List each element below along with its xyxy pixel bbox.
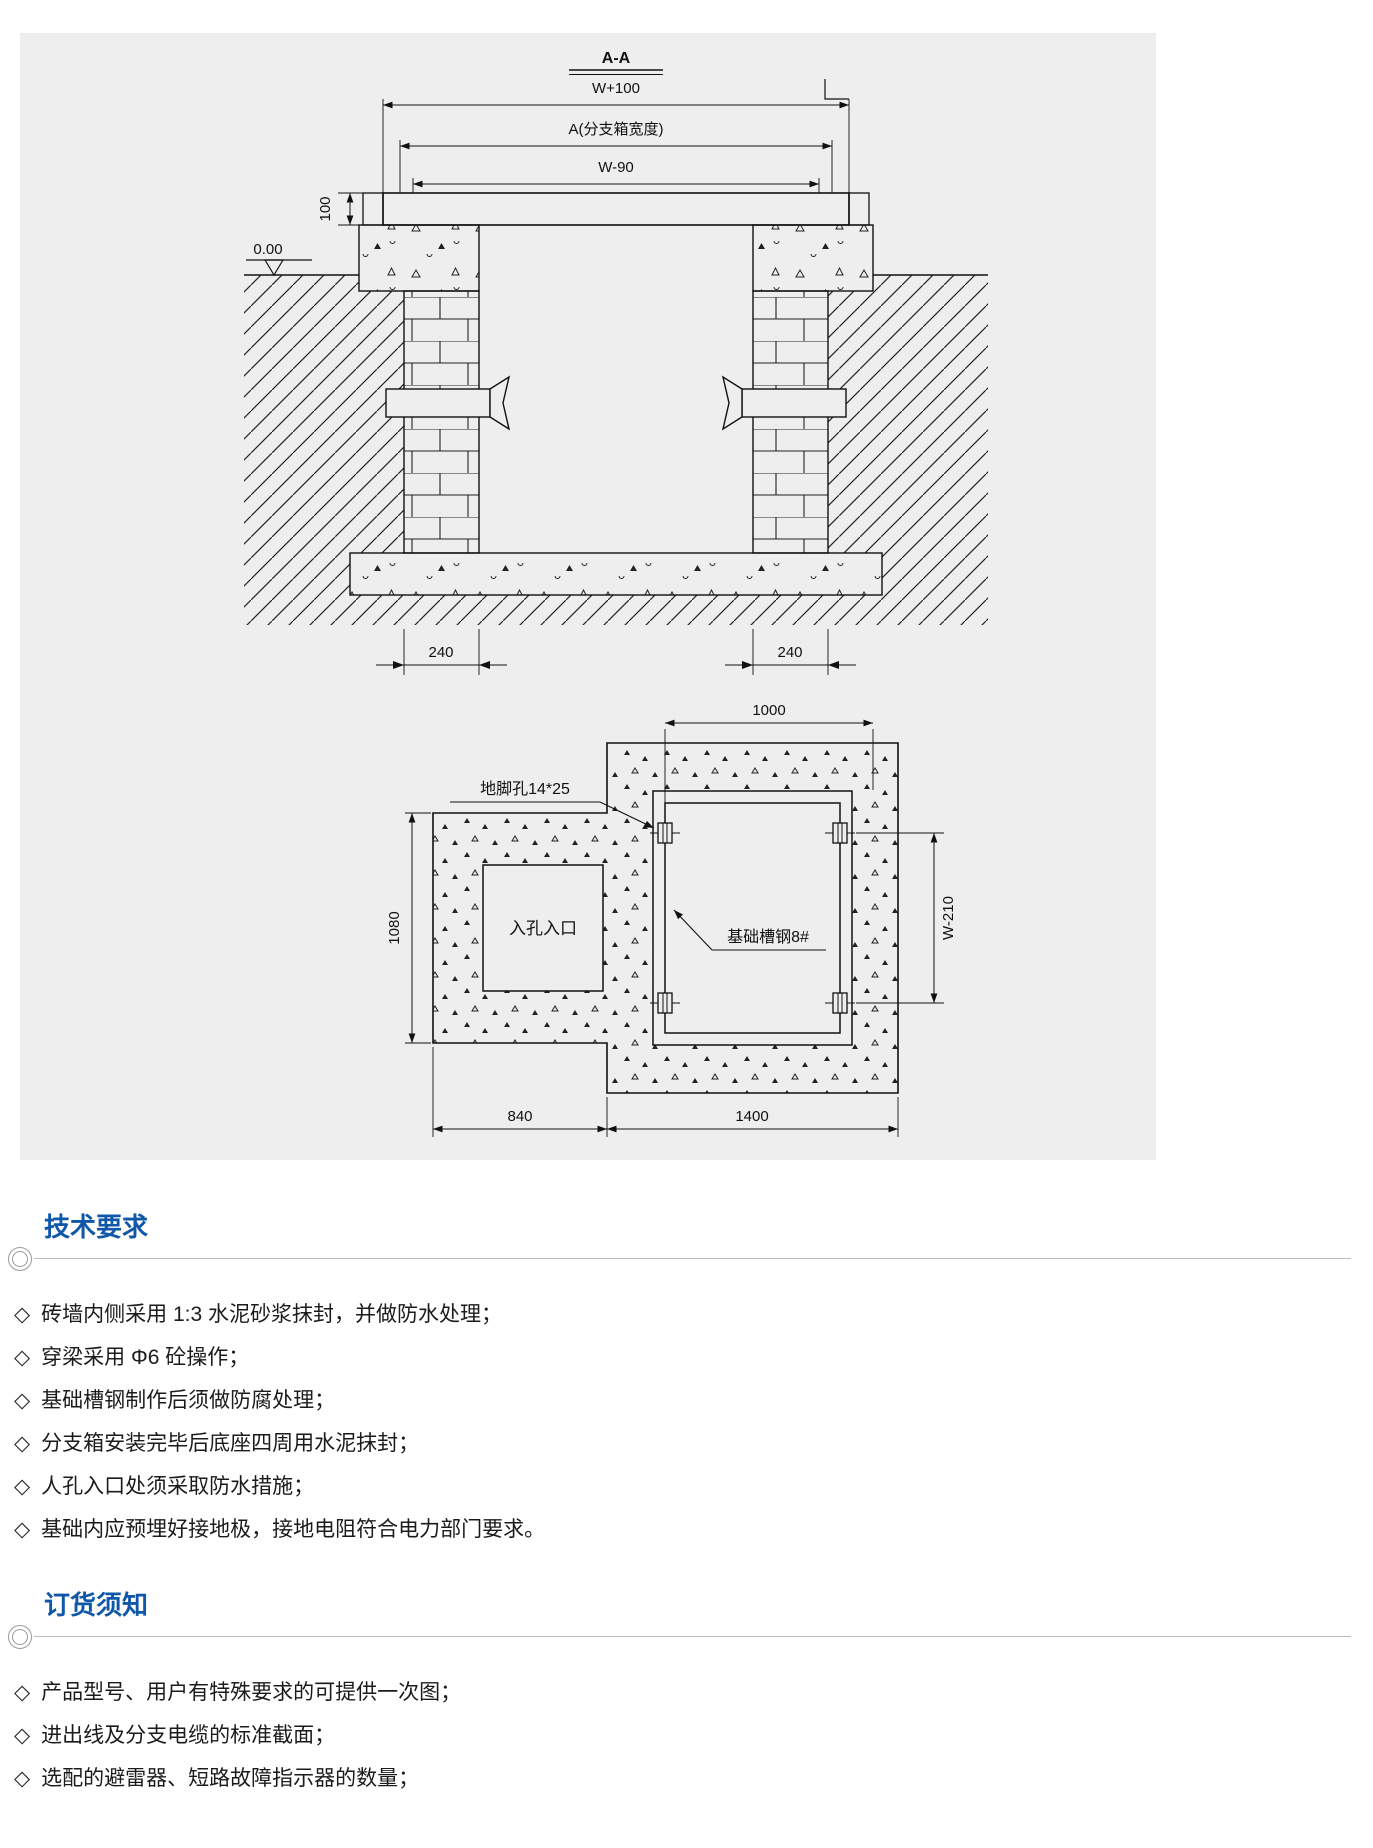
text-sections: 技术要求 ◇ 砖墙内侧采用 1:3 水泥砂浆抹封，并做防水处理； ◇ 穿梁采用 … <box>0 1160 1373 1809</box>
item-text: 人孔入口处须采取防水措施； <box>41 1474 314 1500</box>
heading-rule <box>0 1624 1373 1650</box>
anchor-bolt <box>825 993 855 1013</box>
dim-1400: 1400 <box>607 1097 898 1137</box>
dim-240-left: 240 <box>376 629 507 675</box>
item-text: 选配的避雷器、短路故障指示器的数量； <box>41 1766 419 1792</box>
brick-wall-right <box>753 291 828 553</box>
anchor-bolt <box>825 823 855 843</box>
item-text: 穿梁采用 Φ6 砼操作； <box>41 1345 249 1371</box>
divider-line <box>34 1258 1351 1259</box>
level-0-00-label: 0.00 <box>253 241 282 258</box>
requirements-list: ◇ 砖墙内侧采用 1:3 水泥砂浆抹封，并做防水处理； ◇ 穿梁采用 Φ6 砼操… <box>0 1302 1373 1543</box>
svg-text:基础槽钢8#: 基础槽钢8# <box>727 928 809 946</box>
brick-wall-left <box>404 291 479 553</box>
channel-steel-callout: 基础槽钢8# <box>674 910 826 950</box>
item-text: 进出线及分支电缆的标准截面； <box>41 1723 335 1749</box>
diamond-bullet-icon: ◇ <box>14 1388 30 1414</box>
diamond-bullet-icon: ◇ <box>14 1474 30 1500</box>
divider-line <box>34 1636 1351 1637</box>
section-view-a-a: A-A W+100 A(分支箱宽度) W-90 <box>244 50 988 675</box>
dim-1080: 1080 <box>386 813 431 1043</box>
diamond-bullet-icon: ◇ <box>14 1431 30 1457</box>
channel-frame-inner <box>665 803 840 1033</box>
dim-w-plus-100-label: W+100 <box>592 80 640 97</box>
manhole-label: 入孔入口 <box>509 919 577 938</box>
dim-w-minus-90-label: W-90 <box>598 159 634 176</box>
item-text: 基础内应预埋好接地极，接地电阻符合电力部门要求。 <box>41 1517 545 1543</box>
diamond-bullet-icon: ◇ <box>14 1766 30 1792</box>
diamond-bullet-icon: ◇ <box>14 1302 30 1328</box>
item-text: 基础槽钢制作后须做防腐处理； <box>41 1388 335 1414</box>
list-item: ◇ 产品型号、用户有特殊要求的可提供一次图； <box>14 1680 1373 1706</box>
svg-text:地脚孔14*25: 地脚孔14*25 <box>480 780 570 798</box>
item-text: 砖墙内侧采用 1:3 水泥砂浆抹封，并做防水处理； <box>41 1302 502 1328</box>
corner-mark <box>825 79 849 99</box>
list-item: ◇ 穿梁采用 Φ6 砼操作； <box>14 1345 1373 1371</box>
level-triangle-icon <box>265 260 283 275</box>
section-heading: 技术要求 <box>44 1160 1373 1242</box>
diamond-bullet-icon: ◇ <box>14 1517 30 1543</box>
section-technical-requirements: 技术要求 ◇ 砖墙内侧采用 1:3 水泥砂浆抹封，并做防水处理； ◇ 穿梁采用 … <box>0 1160 1373 1543</box>
earth-hatch-bottom <box>350 595 882 625</box>
dim-840: 840 <box>433 1047 607 1137</box>
svg-text:840: 840 <box>507 1108 532 1125</box>
channel-frame-outer <box>653 791 852 1045</box>
item-text: 分支箱安装完毕后底座四周用水泥抹封； <box>41 1431 419 1457</box>
plan-view: 入孔入口 1000 地脚孔14*25 <box>386 702 957 1137</box>
item-text: 产品型号、用户有特殊要求的可提供一次图； <box>41 1680 461 1706</box>
concrete-pier-right <box>753 225 873 291</box>
diamond-bullet-icon: ◇ <box>14 1723 30 1749</box>
anchor-bolt <box>650 993 680 1013</box>
list-item: ◇ 分支箱安装完毕后底座四周用水泥抹封； <box>14 1431 1373 1457</box>
heading-rule <box>0 1246 1373 1272</box>
anchor-bolt <box>650 823 680 843</box>
diamond-bullet-icon: ◇ <box>14 1345 30 1371</box>
list-item: ◇ 进出线及分支电缆的标准截面； <box>14 1723 1373 1749</box>
section-title: A-A <box>602 50 631 67</box>
list-item: ◇ 基础槽钢制作后须做防腐处理； <box>14 1388 1373 1414</box>
foundation-technical-drawing: A-A W+100 A(分支箱宽度) W-90 <box>20 33 1156 1160</box>
dim-100-label: 100 <box>317 196 334 221</box>
dim-240-right: 240 <box>725 629 856 675</box>
svg-text:W-210: W-210 <box>940 896 957 940</box>
list-item: ◇ 选配的避雷器、短路故障指示器的数量； <box>14 1766 1373 1792</box>
double-circle-ornament-icon <box>8 1247 32 1271</box>
dim-a-box-width-label: A(分支箱宽度) <box>569 121 664 138</box>
svg-text:240: 240 <box>777 644 802 661</box>
section-ordering-notes: 订货须知 ◇ 产品型号、用户有特殊要求的可提供一次图； ◇ 进出线及分支电缆的标… <box>0 1560 1373 1792</box>
ordering-list: ◇ 产品型号、用户有特殊要求的可提供一次图； ◇ 进出线及分支电缆的标准截面； … <box>0 1680 1373 1792</box>
list-item: ◇ 人孔入口处须采取防水措施； <box>14 1474 1373 1500</box>
diamond-bullet-icon: ◇ <box>14 1680 30 1706</box>
document-page: A-A W+100 A(分支箱宽度) W-90 <box>0 0 1373 1848</box>
list-item: ◇ 基础内应预埋好接地极，接地电阻符合电力部门要求。 <box>14 1517 1373 1543</box>
section-heading: 订货须知 <box>44 1560 1373 1620</box>
drawing-panel: A-A W+100 A(分支箱宽度) W-90 <box>20 33 1156 1160</box>
list-item: ◇ 砖墙内侧采用 1:3 水泥砂浆抹封，并做防水处理； <box>14 1302 1373 1328</box>
base-slab <box>350 553 882 595</box>
svg-text:1000: 1000 <box>752 702 785 719</box>
svg-text:240: 240 <box>428 644 453 661</box>
svg-text:1080: 1080 <box>386 911 403 944</box>
svg-text:1400: 1400 <box>735 1108 768 1125</box>
double-circle-ornament-icon <box>8 1625 32 1649</box>
concrete-pier-left <box>359 225 479 291</box>
cover-slab <box>383 193 849 225</box>
